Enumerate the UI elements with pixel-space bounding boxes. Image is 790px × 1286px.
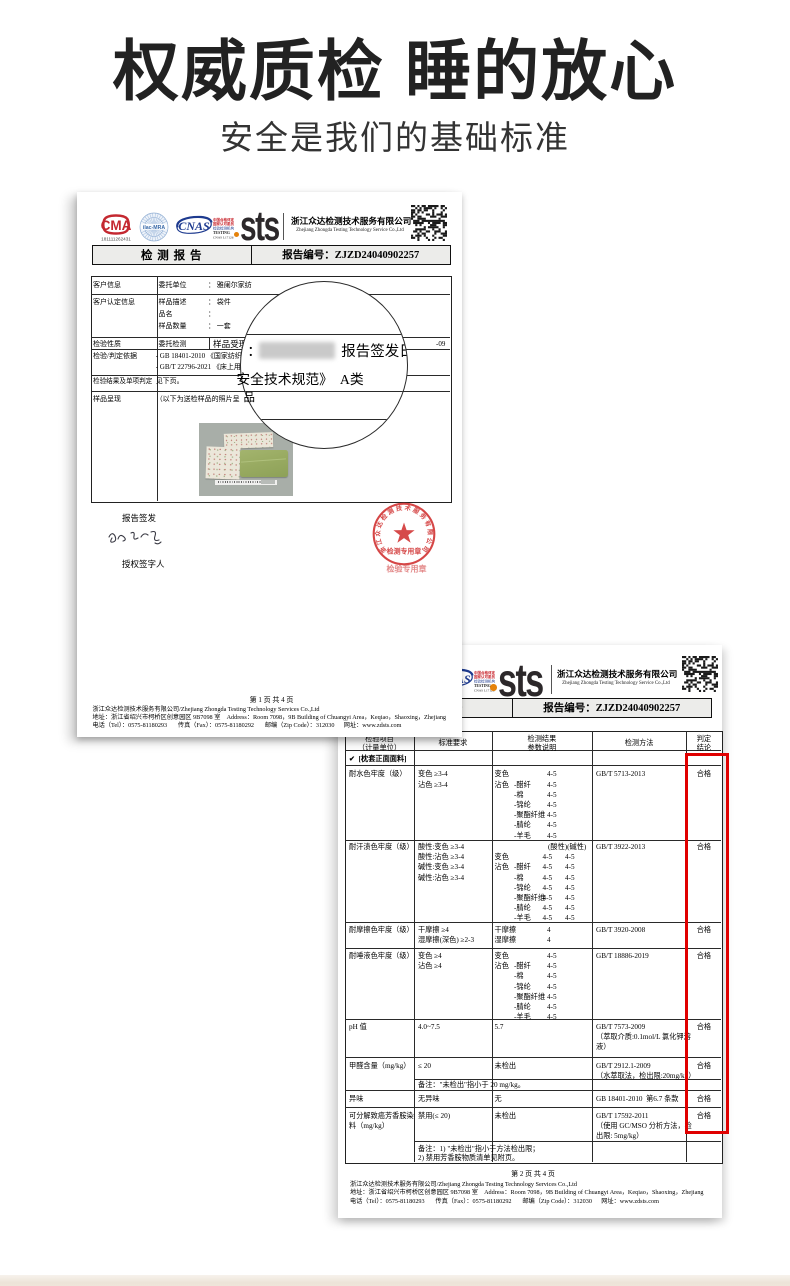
svg-text:CMA: CMA (101, 218, 132, 233)
svg-text:检验专用章: 检验专用章 (387, 564, 427, 574)
svg-text:ilac-MRA: ilac-MRA (143, 225, 165, 231)
svg-text:检测专用章: 检测专用章 (387, 547, 422, 556)
svg-text:TESTING: TESTING (213, 231, 230, 235)
svg-text:CNAS: CNAS (178, 219, 210, 233)
svg-text:检验检测机构: 检验检测机构 (474, 678, 495, 683)
svg-text:检验检测机构: 检验检测机构 (213, 225, 234, 230)
svg-text:CNAS L17126: CNAS L17126 (213, 235, 234, 239)
svg-text:181111262431: 181111262431 (101, 237, 131, 242)
svg-text:TESTING: TESTING (474, 684, 491, 688)
